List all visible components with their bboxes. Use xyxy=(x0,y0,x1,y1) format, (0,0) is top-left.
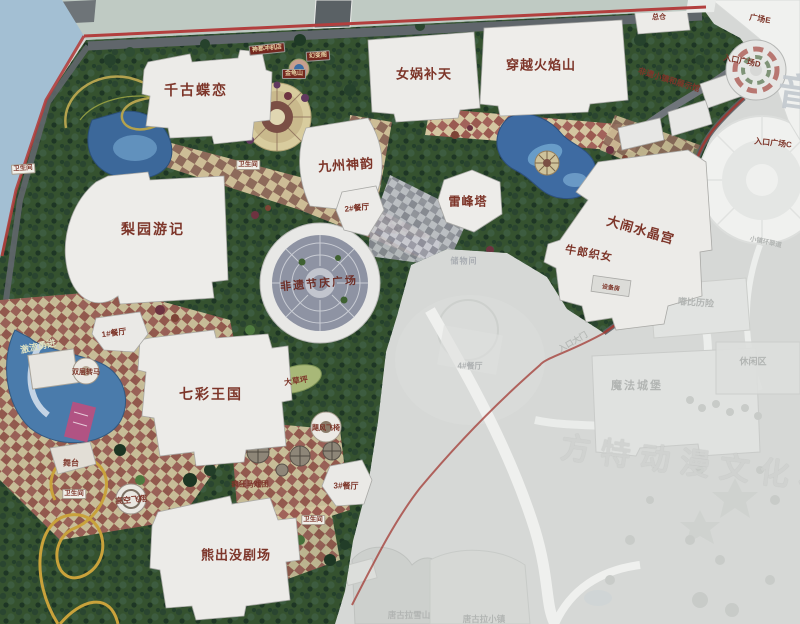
label-sign-b: 幻变阁 xyxy=(306,50,331,62)
label-dubi-lixian: 嘟比历险 xyxy=(678,294,715,309)
label-watermark-fantawild: 方特动漫文化科技 xyxy=(559,423,800,506)
label-liyuan-youji: 梨园游记 xyxy=(121,219,185,239)
label-fengkuang-maxituan: 疯狂马戏团 xyxy=(231,479,269,490)
label-jiliu-yongjin: 激流勇进 xyxy=(19,336,57,356)
label-entrance-plaza-c: 入口广场C xyxy=(754,136,793,151)
label-tanggula-xiaozhen: 唐古拉小镇 xyxy=(463,613,506,624)
label-entrance-plaza-e: 广场E xyxy=(749,12,772,27)
label-xiongchumo-juchang: 熊出没剧场 xyxy=(201,545,271,564)
label-restaurant-4: 4#餐厅 xyxy=(458,361,483,372)
label-jiuzhou-shenyun: 九州神韵 xyxy=(317,153,374,176)
label-chuanyue-huoyanshan: 穿越火焰山 xyxy=(506,55,576,74)
map-labels: 千古蝶恋 女娲补天 穿越火焰山 九州神韵 雷峰塔 大闹水晶宫 牛郎织女 梨园游记… xyxy=(0,0,800,624)
label-restaurant-1: 1#餐厅 xyxy=(101,326,127,340)
label-tanggula-xueshan: 唐古拉雪山 xyxy=(388,609,431,621)
label-zongcang: 总仓 xyxy=(652,12,666,22)
label-sign-c: 金龟山 xyxy=(282,69,306,79)
label-qiangu-dielian: 千古蝶恋 xyxy=(164,80,228,100)
label-feiyi-xiaozhen: 非遗小镇和展示馆 xyxy=(637,65,701,94)
label-entrance-plaza-d: 入口广场D xyxy=(722,52,761,70)
label-wutai: 舞台 xyxy=(63,458,79,469)
label-sign-a: 神都冲机店 xyxy=(249,42,286,56)
label-xiaozhen-huancuidao: 小镇环翠道 xyxy=(749,233,783,250)
label-leifengta: 雷峰塔 xyxy=(448,193,487,210)
label-nuwa-butian: 女娲补天 xyxy=(396,64,452,83)
label-niulang-zhinv: 牛郎织女 xyxy=(564,241,614,265)
label-toilet-1: 卫生间 xyxy=(11,163,35,175)
label-qicai-wangguo: 七彩王国 xyxy=(179,384,243,404)
label-chuwujian: 储物间 xyxy=(451,256,478,267)
label-shuangceng-zhuanma: 双层转马 xyxy=(72,367,100,377)
label-restaurant-3: 3#餐厅 xyxy=(334,481,359,492)
label-jufeng-feiyi: 飓风飞椅 xyxy=(312,423,340,433)
label-rukou-damen: 入口大门 xyxy=(556,329,589,355)
label-danao-shuijinggong: 大闹水晶宫 xyxy=(605,210,678,248)
park-map-photo: 千古蝶恋 女娲补天 穿越火焰山 九州神韵 雷峰塔 大闹水晶宫 牛郎织女 梨园游记… xyxy=(0,0,800,624)
label-xiuxianqu: 休闲区 xyxy=(739,355,766,368)
label-shebeifang: 设备房 xyxy=(601,281,620,292)
label-toilet-4: 卫生间 xyxy=(301,515,325,525)
label-gaokong-feixiang: 高空飞翔 xyxy=(115,493,148,507)
label-mofa-chengbao: 魔法城堡 xyxy=(611,377,663,393)
label-restaurant-2: 2#餐厅 xyxy=(344,201,370,215)
label-feiyi-jieqing-guangchang: 非遗节庆广场 xyxy=(279,272,358,295)
label-toilet-2: 卫生间 xyxy=(236,160,260,170)
label-dacaoping: 大草坪 xyxy=(283,374,308,388)
label-toilet-3: 卫生间 xyxy=(62,489,86,499)
label-watermark-yin: 音 xyxy=(774,60,800,120)
